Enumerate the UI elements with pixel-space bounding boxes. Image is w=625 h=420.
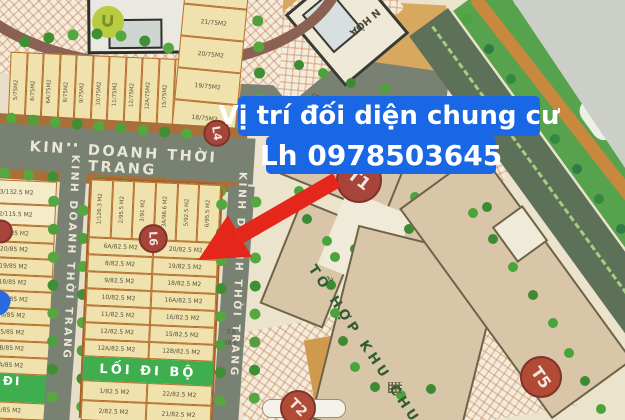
plot-cell: 2/95.5 M2 (110, 180, 134, 239)
map-photo: UYẾN PHỐ ĐI BỘ, CÔNG VIÊN N HÒA TỔ HỢP K… (0, 0, 625, 420)
overlay-line2: Lh 0978503645 (266, 136, 496, 174)
plot-cell: 19/85 M2 (0, 256, 54, 276)
plot-cell: 2B/85 M2 (0, 339, 50, 359)
plot-cell: 15/85 M2 (0, 322, 51, 342)
u-icon (102, 15, 114, 27)
plot-cell: 22/85 M2 (0, 400, 47, 420)
plot-cell: 12B/82.5 M2 (148, 342, 214, 362)
plot-cell: 1/82.5 M2 (82, 380, 148, 403)
block-l6: 1/126.3 M2 2/95.5 M2 3/91 M2 3A/96.6 M2 … (79, 177, 223, 420)
plot-cell: 1/126.3 M2 (89, 179, 113, 238)
plot-cell: 22/82.5 M2 (147, 383, 213, 406)
plot-cell: 2A/85 M2 (0, 355, 49, 375)
plot-cell: 18/85 M2 (0, 273, 53, 293)
dim-16-5: 16.5 (224, 340, 237, 347)
overlay-line1: Vị trí đối diện chung cư (238, 96, 540, 136)
dim-7-5: 7.5 (227, 329, 236, 335)
plot-cell: 20/85 M2 (0, 240, 54, 260)
plot-cell: 2/82.5 M2 (81, 400, 147, 420)
plot-cell: 21/82.5 M2 (146, 403, 212, 420)
tower-t5: T5 (520, 356, 562, 398)
tower-t2: T2 (280, 390, 316, 420)
plot-cell: 12A/82.5 M2 (83, 339, 149, 359)
tree-col-3 (216, 199, 227, 210)
walkway-band-left: LỐI ĐI BỘ (0, 372, 49, 403)
